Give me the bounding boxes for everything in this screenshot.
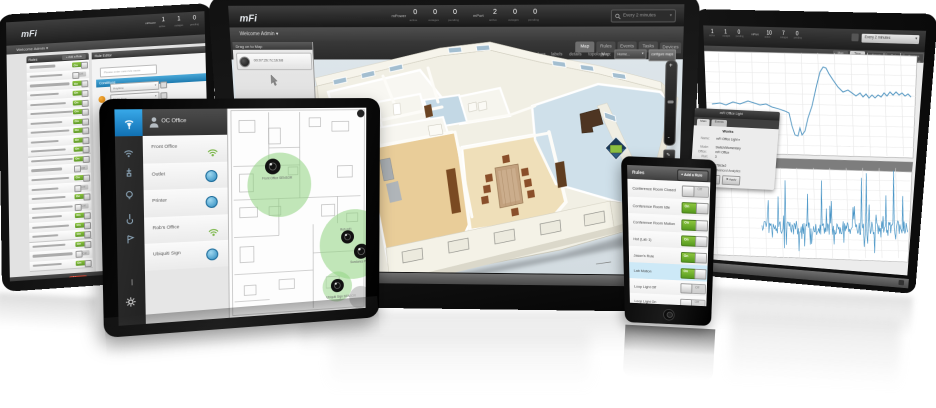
svg-text:Sundance Pro SENSOR: Sundance Pro SENSOR bbox=[350, 259, 366, 264]
svg-text:Rob mFi: Rob mFi bbox=[340, 228, 351, 232]
